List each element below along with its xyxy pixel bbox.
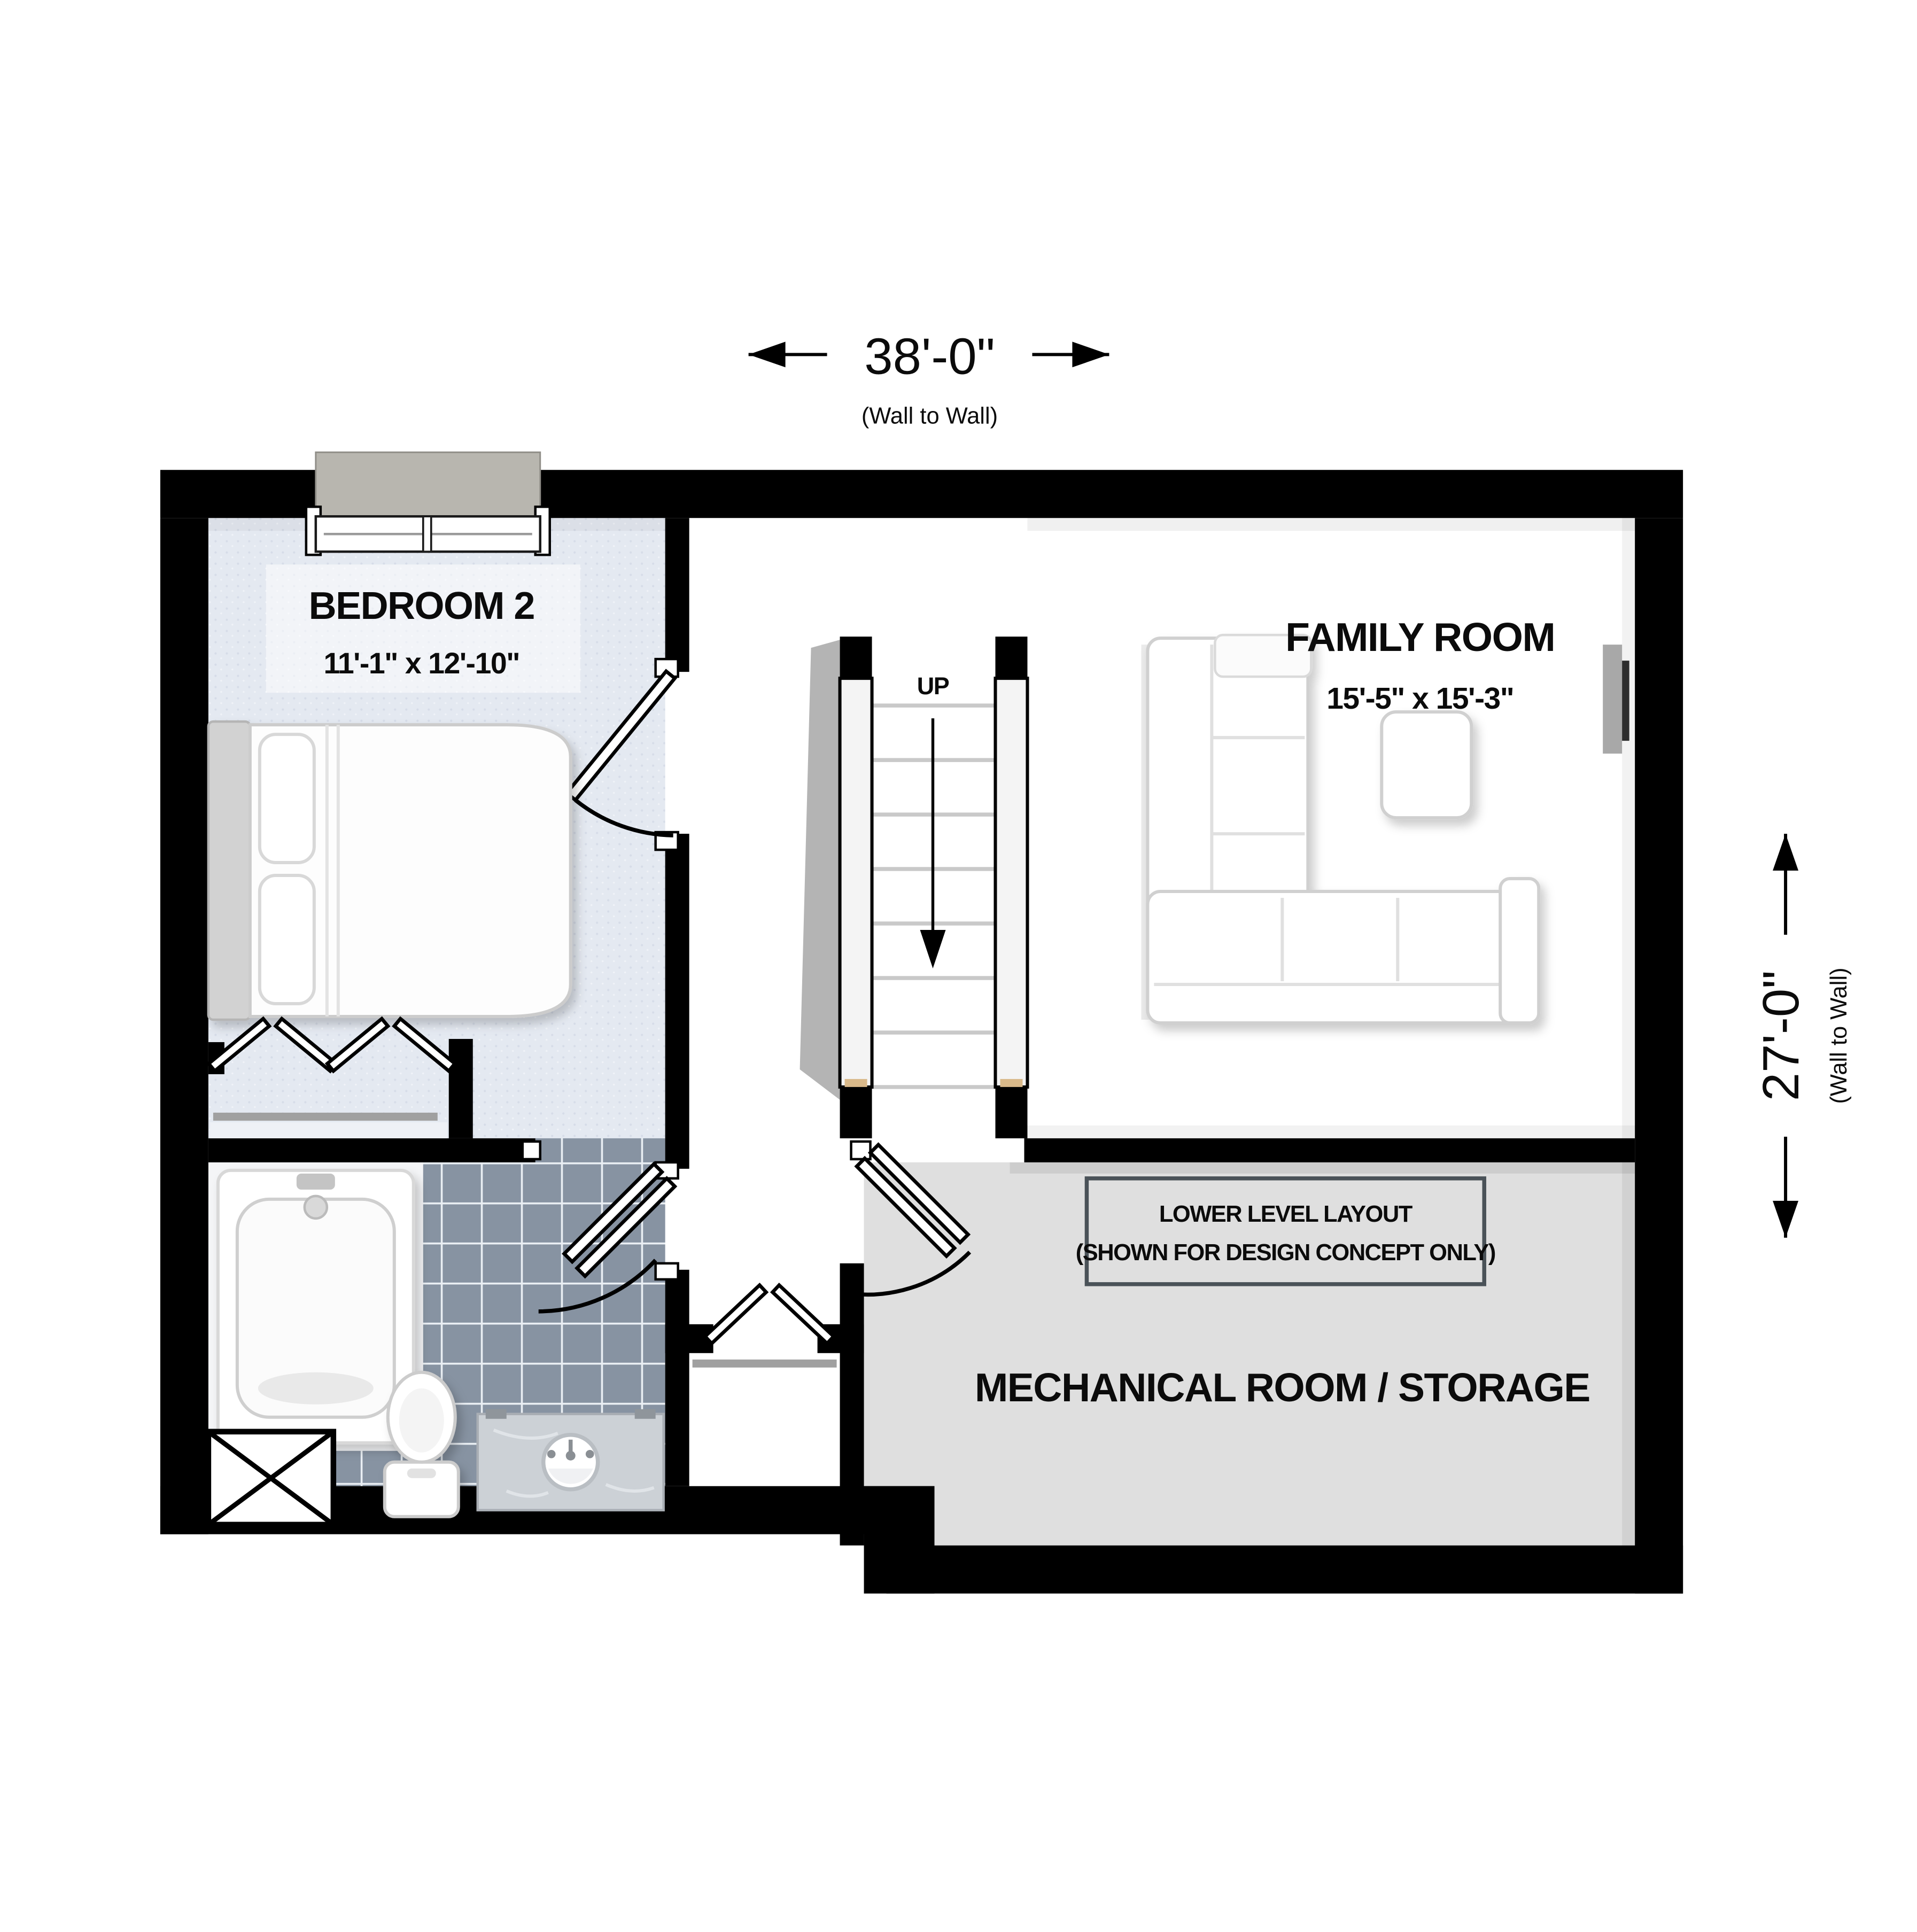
- dim-arrow-left-icon: [749, 342, 786, 367]
- dim-arrow-up-icon: [1773, 834, 1798, 871]
- bed-headboard: [208, 721, 250, 1020]
- stair-stringer-left: [840, 678, 872, 1087]
- dim-arrow-right-icon: [1072, 342, 1109, 367]
- sofa-arm: [1500, 879, 1539, 1023]
- bed-pillow: [260, 734, 314, 863]
- dim-vertical-value: 27'-0": [1752, 971, 1810, 1101]
- tub-drain: [305, 1196, 327, 1219]
- closet-rod: [693, 1360, 837, 1368]
- dim-arrow-down-icon: [1773, 1201, 1798, 1238]
- mechanical-room-label: MECHANICAL ROOM / STORAGE: [975, 1365, 1590, 1410]
- window-well: [316, 452, 540, 518]
- family-room-floor: [1027, 518, 1635, 1138]
- dimension-horizontal: 38'-0" (Wall to Wall): [749, 325, 1109, 429]
- toilet: [385, 1372, 459, 1517]
- vanity: [478, 1409, 664, 1510]
- family-room-name-label: FAMILY ROOM: [1285, 615, 1555, 659]
- bed: [208, 721, 571, 1020]
- tv: [1603, 645, 1629, 754]
- floor-plan-page: 38'-0" (Wall to Wall) 27'-0" (Wall to Wa…: [0, 0, 1917, 1932]
- crossed-box: [208, 1432, 333, 1525]
- bedroom-label-group: BEDROOM 2 11'-1" x 12'-10": [266, 564, 580, 693]
- sofa-horizontal-run: [1147, 891, 1539, 1023]
- dim-horizontal-value: 38'-0": [864, 328, 995, 385]
- toilet-seat: [399, 1388, 444, 1453]
- bed-pillow: [260, 875, 314, 1004]
- staircase: UP: [800, 637, 1028, 1138]
- stair-stringer-right: [995, 678, 1027, 1087]
- note-line2: (SHOWN FOR DESIGN CONCEPT ONLY): [1076, 1240, 1495, 1266]
- note-box-frame: [1086, 1178, 1484, 1284]
- note-line1: LOWER LEVEL LAYOUT: [1159, 1201, 1413, 1227]
- closet-rod: [213, 1113, 438, 1121]
- ottoman: [1382, 712, 1471, 818]
- tv-screen: [1622, 661, 1629, 741]
- window-mullion: [423, 516, 431, 552]
- family-room-size-label: 15'-5" x 15'-3": [1326, 681, 1514, 716]
- dimension-vertical: 27'-0" (Wall to Wall): [1752, 834, 1852, 1238]
- tub-faucet: [297, 1174, 335, 1190]
- dim-horizontal-note: (Wall to Wall): [862, 403, 998, 429]
- floor-plan-drawing: 38'-0" (Wall to Wall) 27'-0" (Wall to Wa…: [0, 0, 1917, 1932]
- bedroom-size-label: 11'-1" x 12'-10": [324, 647, 519, 680]
- bedroom-name-label: BEDROOM 2: [309, 585, 534, 627]
- dim-vertical-note: (Wall to Wall): [1826, 967, 1852, 1104]
- bathtub: [218, 1170, 414, 1443]
- room-family: [1027, 518, 1635, 1138]
- tv-mount-panel: [1603, 645, 1622, 754]
- note-box: LOWER LEVEL LAYOUT (SHOWN FOR DESIGN CON…: [1076, 1178, 1495, 1284]
- bedroom-window: [306, 452, 550, 555]
- stairs-up-label: UP: [917, 672, 949, 700]
- bathroom-door-threshold: [535, 1138, 665, 1164]
